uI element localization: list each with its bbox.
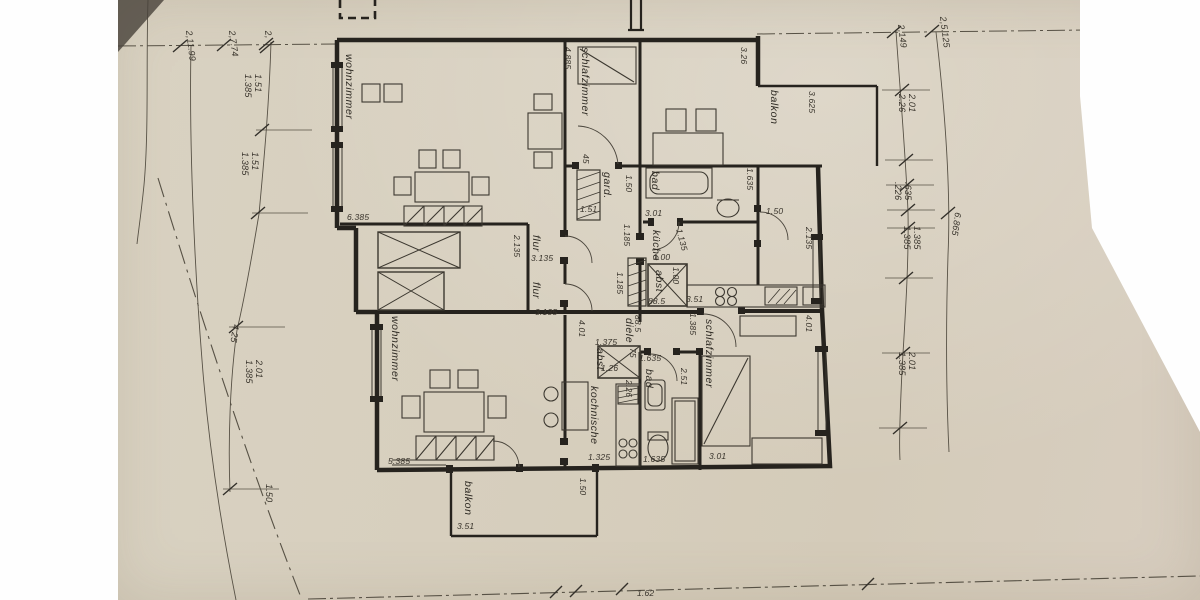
- room-label-abst-upper: abst: [652, 270, 664, 292]
- dim-1635-bad-bottom: 1.635: [643, 455, 665, 464]
- chain-left-7: 2.011.385: [243, 360, 263, 384]
- chain-left-6: 4.25: [228, 324, 240, 344]
- scan-margin-left: [0, 0, 118, 600]
- dim-885-a: 88.5: [648, 297, 665, 306]
- dim-line: 1.385: [901, 226, 911, 250]
- dim-4885: 4.885: [563, 47, 572, 69]
- dim-line: 2.26: [896, 94, 906, 112]
- dim-162-bottom: 1.62: [637, 589, 654, 598]
- room-label-flur-b: flur: [529, 282, 541, 299]
- dim-1635-bad-top: 1.635: [639, 354, 661, 363]
- room-label-kochnische: kochnische: [587, 386, 599, 445]
- dim-150-gard: 1.50: [624, 175, 633, 192]
- dim-6385: 6.385: [347, 213, 369, 222]
- dim-251: 2.51: [679, 368, 688, 385]
- dim-line: 2.01: [253, 360, 263, 384]
- dim-1375: 1.375: [595, 338, 617, 347]
- dim-150-right: 1.50: [766, 207, 783, 216]
- dim-line: 1.385: [242, 74, 252, 98]
- floorplan-drawing: [0, 0, 1200, 600]
- dim-line: 2.01: [906, 352, 916, 376]
- chain-left-8: 1.50: [263, 484, 273, 502]
- room-label-schlafzimmer-upper: schlafzimmer: [578, 47, 590, 116]
- dim-150-balkon: 1.50: [578, 478, 587, 495]
- dim-1385-mid: 1.385: [688, 313, 697, 335]
- dim-126: 1.26: [601, 364, 618, 373]
- dim-3135-a: 3.135: [531, 254, 553, 263]
- dim-351-kueche: 3.51: [686, 295, 703, 304]
- scanned-floorplan-page: wohnzimmer schlafzimmer balkon wohnzimme…: [0, 0, 1200, 600]
- dim-2135-flur: 2.135: [512, 235, 521, 257]
- dim-301-upper: 3.01: [645, 209, 662, 218]
- room-label-schlafzimmer-lower: schlafzimmer: [702, 319, 714, 388]
- chain-left-3: 2,: [262, 30, 273, 39]
- chain-right-5: 1.3851.385: [901, 226, 921, 250]
- dim-line: 1.385: [896, 352, 906, 376]
- dim-1325: 1.325: [588, 453, 610, 462]
- dim-line: 2.01: [906, 94, 916, 112]
- dim-2135-right: 2.135: [804, 227, 813, 249]
- room-label-balkon-lower: balkon: [461, 481, 473, 516]
- dim-326: 3.26: [739, 47, 748, 64]
- chain-left-4: 1.511.385: [242, 74, 262, 98]
- dim-line: .226: [892, 182, 902, 200]
- dim-line: 1.385: [911, 226, 921, 250]
- dim-3625: 3.625: [807, 91, 816, 113]
- chain-right-7: 2.011.385: [896, 352, 916, 376]
- dim-1635-bad-upper: 1.635: [745, 168, 754, 190]
- dim-401-diele: 4.01: [577, 320, 586, 337]
- room-label-garderobe: gard.: [600, 172, 612, 199]
- chain-left-5: 1.511.385: [239, 152, 259, 176]
- dim-line: 1.51: [249, 152, 259, 176]
- room-label-balkon-upper: balkon: [767, 90, 779, 125]
- dim-75: 75: [628, 348, 637, 358]
- room-label-bad-upper: bad: [648, 171, 660, 190]
- chain-right-1: 2,149: [895, 24, 908, 49]
- dim-151-wall: 1.51: [580, 205, 597, 214]
- dim-3135-b: 3.135: [535, 308, 557, 317]
- windows: [333, 68, 826, 465]
- dim-100-a: 1.00: [653, 253, 670, 262]
- dim-45-wall: 45: [581, 154, 590, 164]
- room-label-wohnzimmer-upper: wohnzimmer: [342, 54, 354, 120]
- dim-line: 1.385: [239, 152, 249, 176]
- room-label-flur-a: flur: [529, 235, 541, 252]
- dim-line: 1.51: [252, 74, 262, 98]
- dim-5385: 5.385: [388, 457, 410, 466]
- room-label-wohnzimmer-lower: wohnzimmer: [388, 316, 400, 382]
- chain-left-2: 2,7.74: [226, 30, 239, 57]
- dim-line: .635: [902, 182, 912, 200]
- dim-401-right: 4.01: [804, 315, 813, 332]
- dim-226-abst: 2.26: [624, 380, 633, 397]
- chain-right-4: .635.226: [892, 182, 912, 200]
- dim-100-b: 1.00: [671, 267, 680, 284]
- dim-1185-a: 1.185: [622, 224, 631, 246]
- chain-right-6: 6.865: [949, 212, 962, 237]
- room-label-bad-lower: bad: [642, 369, 654, 388]
- dim-351-balkon: 3.51: [457, 522, 474, 531]
- dim-885-b: 88.5: [633, 315, 642, 332]
- chain-right-3: 2.012.26: [896, 94, 916, 112]
- dim-1185-b: 1.185: [615, 272, 624, 294]
- dim-line: 1.385: [243, 360, 253, 384]
- dim-301-lower: 3.01: [709, 452, 726, 461]
